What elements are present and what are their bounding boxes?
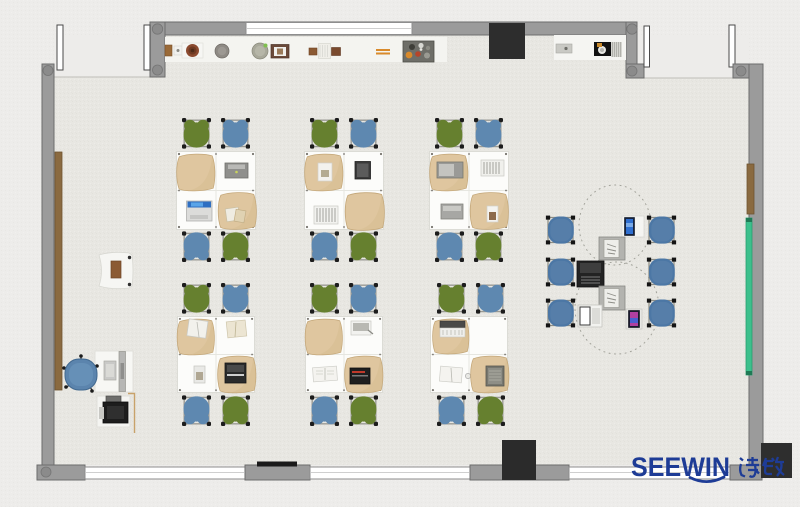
- svg-text:SEEWIN: SEEWIN: [631, 452, 730, 482]
